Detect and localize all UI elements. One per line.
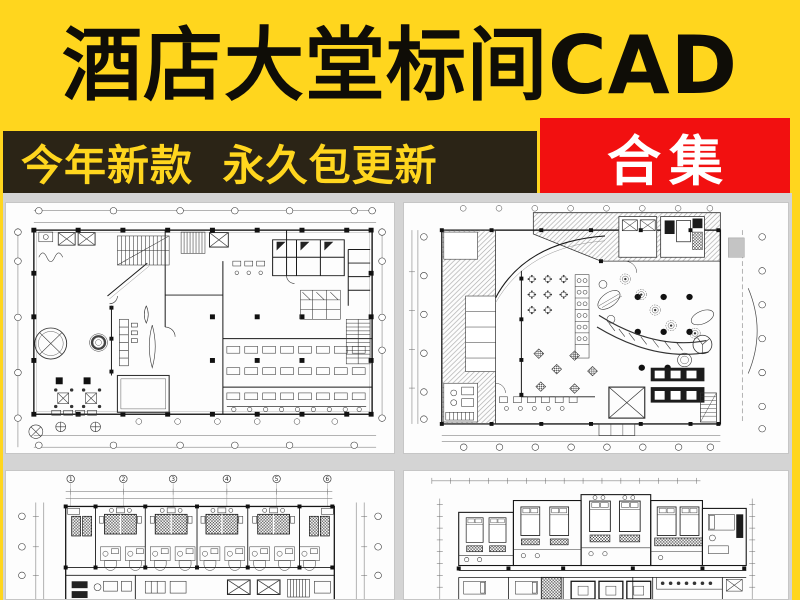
collection-badge: 合集 xyxy=(540,118,790,194)
bl-guest-rooms xyxy=(68,508,334,536)
bl-bathroom-band xyxy=(101,547,320,571)
svg-text:5: 5 xyxy=(275,476,279,483)
svg-text:4: 4 xyxy=(225,476,229,483)
floorplan-grid: 1 2 3 4 5 6 xyxy=(0,193,800,600)
promo-text: 今年新款 永久包更新 xyxy=(21,132,438,193)
page-title: 酒店大堂标间CAD xyxy=(62,26,738,106)
floorplan-lobby-2 xyxy=(403,202,789,454)
floorplan-lobby-1-drawing xyxy=(6,203,394,453)
br-columns xyxy=(457,567,746,571)
tl-banquet-tables xyxy=(227,261,366,411)
tr-elevator-block xyxy=(599,368,716,436)
br-guest-beds xyxy=(459,496,744,562)
collection-badge-text: 合集 xyxy=(599,117,731,196)
svg-text:6: 6 xyxy=(326,476,330,483)
br-lower-rooms xyxy=(464,577,743,599)
promo-page: 酒店大堂标间CAD 今年新款 永久包更新 合集 xyxy=(0,0,800,600)
svg-text:3: 3 xyxy=(171,476,175,483)
title-banner: 酒店大堂标间CAD xyxy=(0,0,800,131)
floorplan-rooms-1-drawing: 1 2 3 4 5 6 xyxy=(6,471,394,599)
floorplan-rooms-2 xyxy=(403,470,789,600)
tl-hatch-wedges xyxy=(277,242,334,251)
svg-text:2: 2 xyxy=(122,476,126,483)
floorplan-lobby-2-drawing xyxy=(404,203,788,453)
tr-column-dots xyxy=(635,294,693,371)
tl-interior-walls xyxy=(107,230,372,414)
floorplan-rooms-2-drawing xyxy=(404,471,788,599)
bl-core xyxy=(72,575,331,599)
promo-bar: 今年新款 永久包更新 xyxy=(3,131,537,193)
svg-text:1: 1 xyxy=(69,476,73,483)
floorplan-lobby-1 xyxy=(5,202,395,454)
tl-columns xyxy=(31,228,373,417)
floorplan-rooms-1: 1 2 3 4 5 6 xyxy=(5,470,395,600)
